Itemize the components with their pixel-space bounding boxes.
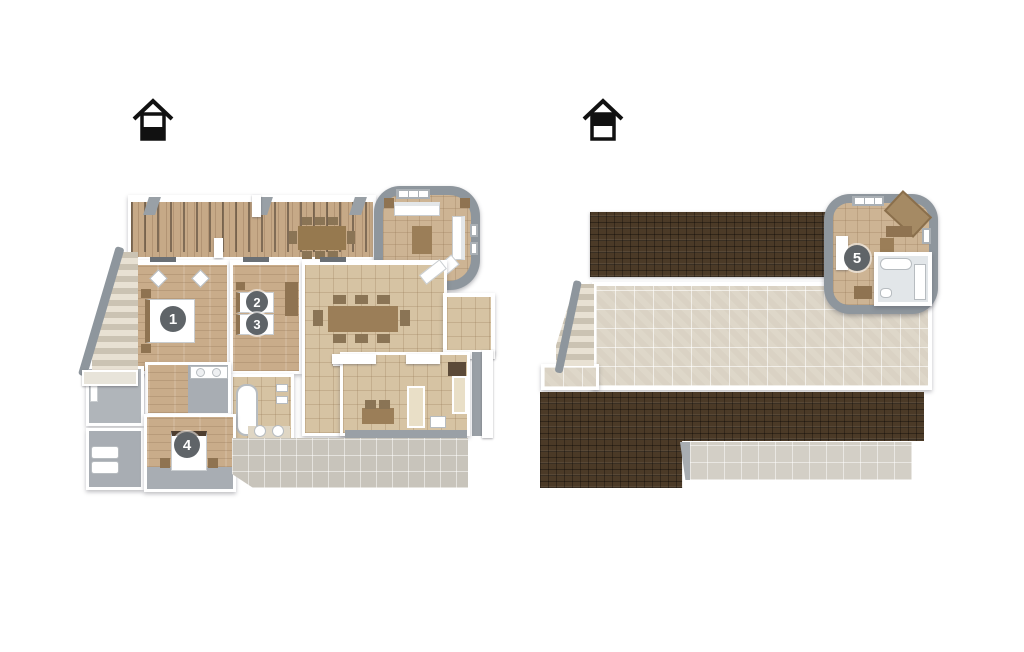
roof-north — [590, 212, 830, 277]
floorplan-canvas: 1 2 3 4 5 — [0, 0, 1024, 652]
vanity — [914, 264, 926, 300]
room-marker-4[interactable]: 4 — [174, 432, 200, 458]
bathtub — [880, 258, 912, 270]
room-marker-5[interactable]: 5 — [844, 245, 870, 271]
dresser — [854, 286, 872, 299]
room-marker-3[interactable]: 3 — [246, 313, 268, 335]
window — [922, 228, 931, 244]
kitchenette-counter — [886, 226, 912, 237]
skylight — [852, 196, 884, 206]
upper-floor-plan: 5 — [0, 0, 1024, 652]
toilet — [880, 288, 892, 298]
lower-roof-deck — [690, 442, 912, 480]
room-marker-1[interactable]: 1 — [160, 306, 186, 332]
terrace-walkway — [541, 364, 599, 390]
room-marker-2[interactable]: 2 — [246, 291, 268, 313]
